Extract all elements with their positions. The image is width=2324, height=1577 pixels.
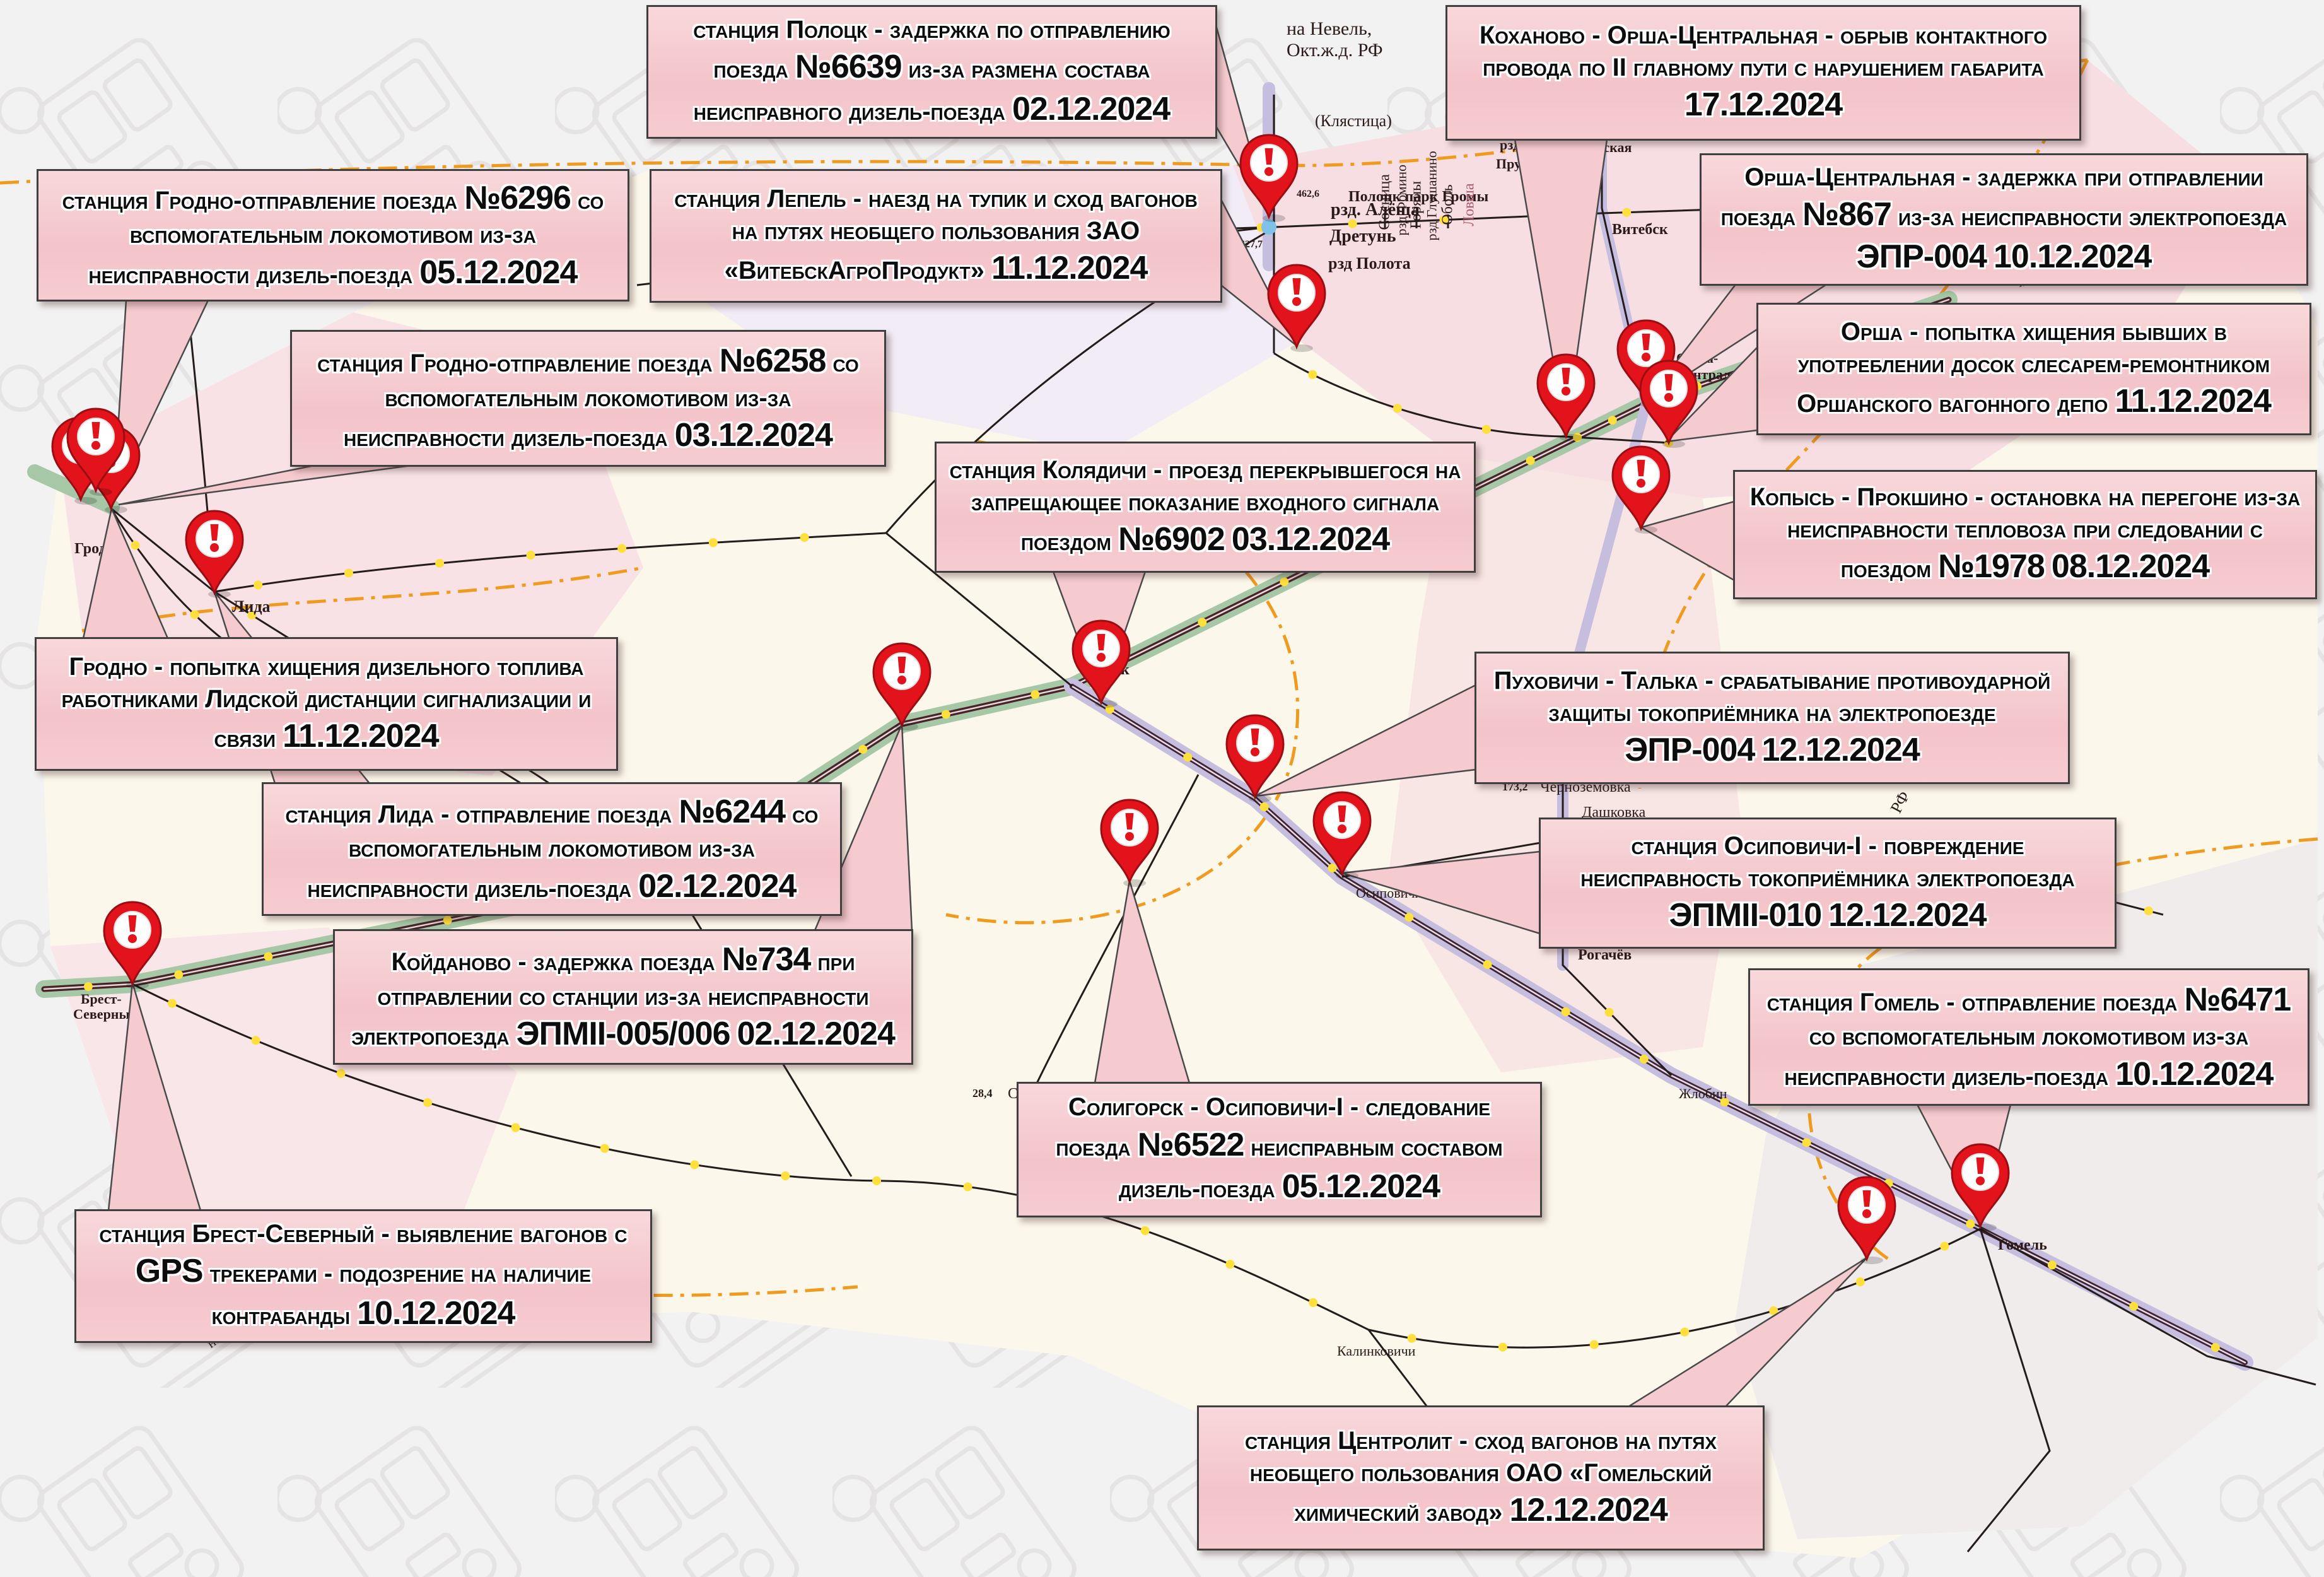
incident-pin-centrolit bbox=[1838, 1177, 1895, 1264]
incident-pin-lida bbox=[186, 511, 243, 598]
incident-pin-lepel bbox=[1268, 265, 1325, 352]
incident-pin-gomel bbox=[1952, 1144, 2009, 1231]
incident-pin-koydanovo bbox=[873, 643, 930, 730]
railway-incident-map: на Невель,Окт.ж.д. РФ(Клястица)рзд. Алёщ… bbox=[0, 0, 2324, 1577]
incident-pin-kolyadichi bbox=[1073, 621, 1130, 708]
incident-pin-brest-severny bbox=[104, 902, 161, 989]
incident-pin-kokhanovo bbox=[1538, 355, 1594, 442]
incident-pin-soligorsk-line bbox=[1101, 800, 1158, 887]
incident-pin-polotsk bbox=[1241, 135, 1297, 222]
incident-pin-pukhovichi-talka bbox=[1227, 715, 1283, 802]
incident-pin-orsha bbox=[1640, 361, 1697, 448]
incident-pin-osipovichi bbox=[1314, 792, 1370, 879]
incident-pin-kopys bbox=[1613, 447, 1669, 534]
incident-pins-layer bbox=[0, 0, 2324, 1577]
